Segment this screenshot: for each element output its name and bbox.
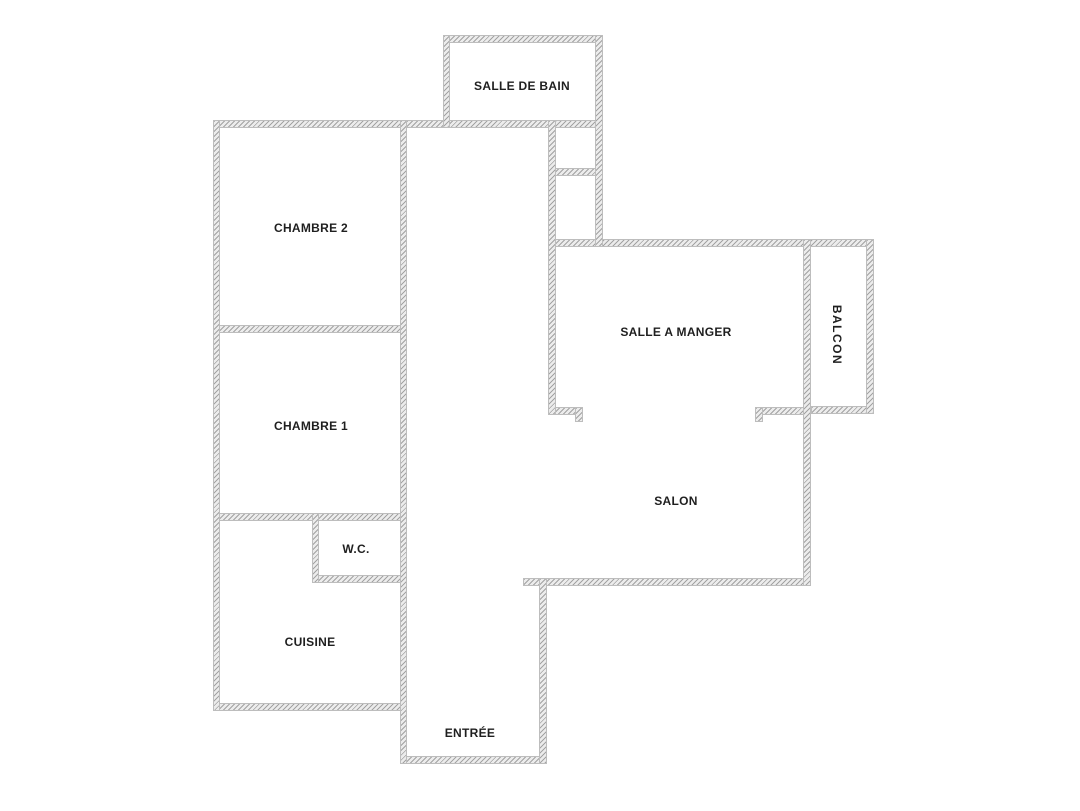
- wall-corridor-right: [548, 120, 556, 415]
- wall-balcony-right: [866, 239, 874, 414]
- wall-kitchen-bottom: [213, 703, 407, 711]
- wall-entry-right: [539, 578, 547, 764]
- wall-bathroom-left: [443, 35, 450, 128]
- wall-balcony-bottom: [811, 406, 874, 414]
- wall-bedroom-divider: [213, 325, 403, 333]
- room-label-chambre-1: CHAMBRE 1: [274, 419, 348, 433]
- wall-bathroom-right: [595, 35, 603, 247]
- room-label-entree: ENTRÉE: [445, 726, 495, 740]
- wall-bedroom1-bottom: [213, 513, 407, 521]
- room-label-balcon: BALCON: [830, 305, 844, 365]
- wall-upper-main: [213, 120, 603, 128]
- wall-entry-bottom: [400, 756, 547, 764]
- room-label-salle-de-bain: SALLE DE BAIN: [474, 79, 570, 93]
- wall-balcony-separator: [803, 239, 811, 586]
- wall-dining-left-jamb: [575, 407, 583, 422]
- wall-outer-left: [213, 120, 220, 711]
- wall-dining-right-jamb: [755, 407, 763, 422]
- room-label-wc: W.C.: [342, 542, 369, 556]
- wall-wc-left: [312, 513, 319, 583]
- wall-wc-bottom: [312, 575, 407, 583]
- room-label-cuisine: CUISINE: [285, 635, 336, 649]
- room-label-chambre-2: CHAMBRE 2: [274, 221, 348, 235]
- room-label-salle-a-manger: SALLE A MANGER: [620, 325, 731, 339]
- floor-plan: SALLE DE BAIN CHAMBRE 2 CHAMBRE 1 W.C. C…: [0, 0, 1080, 811]
- wall-closet-divider: [552, 168, 599, 176]
- room-label-salon: SALON: [654, 494, 698, 508]
- wall-corridor-left: [400, 120, 407, 764]
- wall-bathroom-top: [443, 35, 603, 43]
- wall-living-bottom: [523, 578, 811, 586]
